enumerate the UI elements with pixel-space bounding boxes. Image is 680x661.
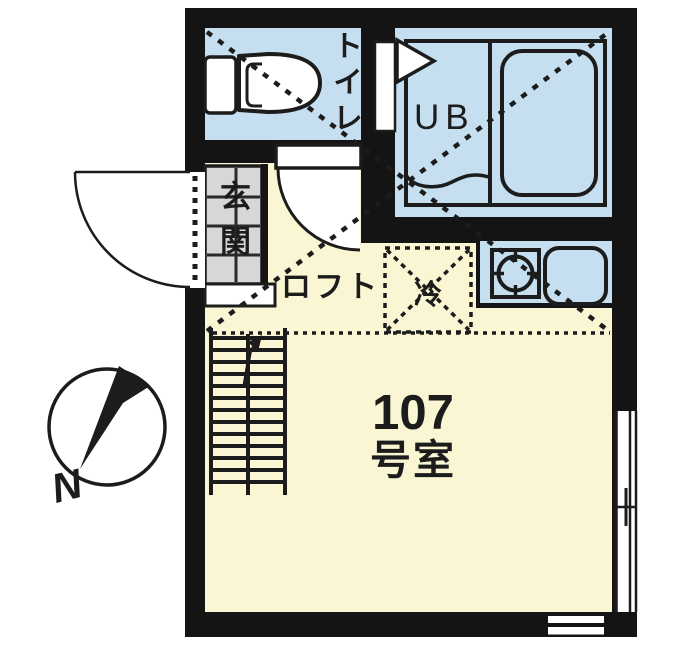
unit-bath-label: UB	[414, 100, 475, 135]
toilet-bowl	[239, 54, 320, 112]
loft-label: ロフト	[281, 273, 380, 303]
room-number-digits: 107	[347, 389, 479, 438]
room-number: 107 号室	[347, 389, 479, 483]
bottom-window-bar1	[548, 616, 604, 623]
floor-plan-canvas: トイレ UB 玄関 ロフト 冷 107 号室 N	[0, 0, 680, 661]
room-number-suffix: 号室	[347, 438, 479, 483]
entrance-door-arc	[75, 172, 190, 287]
room-door-leaf	[276, 145, 361, 168]
wall-entrance-right	[261, 164, 268, 287]
toilet-bath-door	[375, 42, 395, 131]
bottom-window-bar2	[548, 627, 604, 635]
refrigerator-label: 冷	[414, 281, 442, 309]
toilet-label: トイレ	[329, 30, 359, 138]
entrance-label: 玄関	[217, 180, 248, 270]
wall-corner	[361, 140, 398, 243]
toilet-tank	[205, 57, 236, 113]
